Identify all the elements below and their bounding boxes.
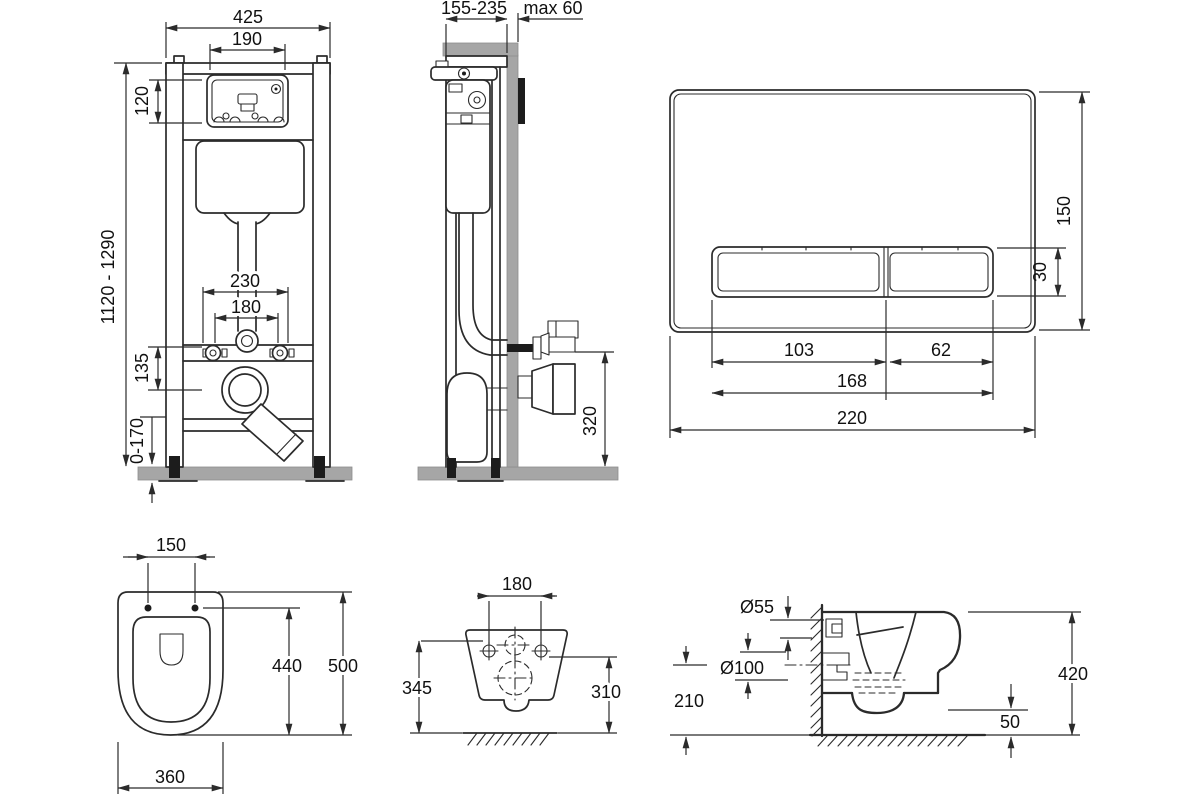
dim-label: 50 bbox=[1000, 712, 1020, 732]
dim-label: 360 bbox=[155, 767, 185, 787]
flush-plate-view: 150 30 103 62 168 220 bbox=[670, 90, 1090, 438]
frame-side-view: 155-235 max 60 320 bbox=[418, 0, 618, 481]
dim-inlet-height: 320 bbox=[575, 352, 614, 466]
inlet-port bbox=[826, 619, 842, 637]
dim-floor-clearance: 50 bbox=[948, 684, 1028, 758]
diagram-canvas: 425 190 120 1120 - 1290 230 180 bbox=[0, 0, 1200, 800]
mounting-hole-left bbox=[145, 605, 152, 612]
ground-hatch bbox=[463, 733, 557, 745]
flush-plate-edge bbox=[518, 78, 525, 124]
dim-label: 62 bbox=[931, 340, 951, 360]
dim-label: 120 bbox=[132, 86, 152, 116]
dim-label: 103 bbox=[784, 340, 814, 360]
dim-label: 425 bbox=[233, 7, 263, 27]
dim-label: 500 bbox=[328, 656, 358, 676]
dim-label: 150 bbox=[1054, 196, 1074, 226]
dim-foot-adjustment: 0-170 bbox=[127, 417, 166, 503]
dim-outlet-height: 210 bbox=[673, 646, 707, 755]
bowl-side-outline bbox=[822, 612, 960, 713]
dim-label: 320 bbox=[580, 406, 600, 436]
dim-label: Ø100 bbox=[720, 658, 764, 678]
dim-label: 180 bbox=[502, 574, 532, 594]
dim-label: 0-170 bbox=[127, 418, 147, 464]
flush-opening bbox=[160, 634, 183, 665]
floor-hatch bbox=[670, 735, 1080, 746]
dim-plate-height: 150 bbox=[1039, 92, 1090, 330]
dim-label: 230 bbox=[230, 271, 260, 291]
dim-label: Ø55 bbox=[740, 597, 774, 617]
dim-outlet-diameter: Ø100 bbox=[720, 633, 788, 699]
dim-label: 190 bbox=[232, 29, 262, 49]
dim-label: 180 bbox=[231, 297, 261, 317]
bowl-rear-view: 180 345 310 bbox=[402, 574, 621, 745]
dim-label: 310 bbox=[591, 682, 621, 702]
dim-label: 30 bbox=[1030, 262, 1050, 282]
outlet-port bbox=[822, 653, 849, 680]
flush-buttons bbox=[712, 247, 993, 297]
large-flush-button[interactable] bbox=[718, 253, 879, 291]
outlet-bend bbox=[222, 367, 303, 461]
bowl-side-view: Ø55 Ø100 210 420 50 bbox=[670, 596, 1088, 758]
dim-label: 220 bbox=[837, 408, 867, 428]
dim-label: 210 bbox=[674, 691, 704, 711]
dim-label: 420 bbox=[1058, 664, 1088, 684]
dim-label: 168 bbox=[837, 371, 867, 391]
technical-drawing-page: 425 190 120 1120 - 1290 230 180 bbox=[0, 0, 1200, 800]
outlet-connector-bell bbox=[518, 364, 575, 414]
p-trap bbox=[447, 373, 507, 462]
dim-label: 345 bbox=[402, 678, 432, 698]
dim-max-wall-thickness: max 60 bbox=[518, 0, 583, 42]
dim-label: 135 bbox=[132, 353, 152, 383]
access-window bbox=[207, 75, 288, 127]
cistern-side bbox=[446, 80, 490, 213]
dim-buttons-width: 168 bbox=[712, 371, 993, 393]
small-flush-button[interactable] bbox=[890, 253, 988, 291]
wall-hatch bbox=[811, 605, 822, 736]
mounting-hole-right bbox=[192, 605, 199, 612]
mounting-bolt-right bbox=[270, 346, 294, 361]
dim-label: 440 bbox=[272, 656, 302, 676]
dim-label: max 60 bbox=[523, 0, 582, 18]
dim-label: 1120 - 1290 bbox=[98, 230, 118, 325]
wall bbox=[507, 55, 518, 467]
mounting-bolt-left bbox=[203, 346, 227, 361]
cistern-tank bbox=[196, 141, 304, 224]
bowl-seat-rim bbox=[133, 617, 210, 722]
water-level-lines bbox=[853, 673, 905, 693]
dim-label: 155-235 bbox=[441, 0, 507, 18]
dim-width: 360 bbox=[118, 742, 223, 794]
dim-label: 150 bbox=[156, 535, 186, 555]
bowl-rear-outline bbox=[466, 630, 567, 711]
bowl-top-view: 150 440 500 360 bbox=[118, 535, 358, 794]
frame-front-view: 425 190 120 1120 - 1290 230 180 bbox=[98, 7, 352, 503]
dim-bowl-height: 420 bbox=[968, 612, 1088, 735]
